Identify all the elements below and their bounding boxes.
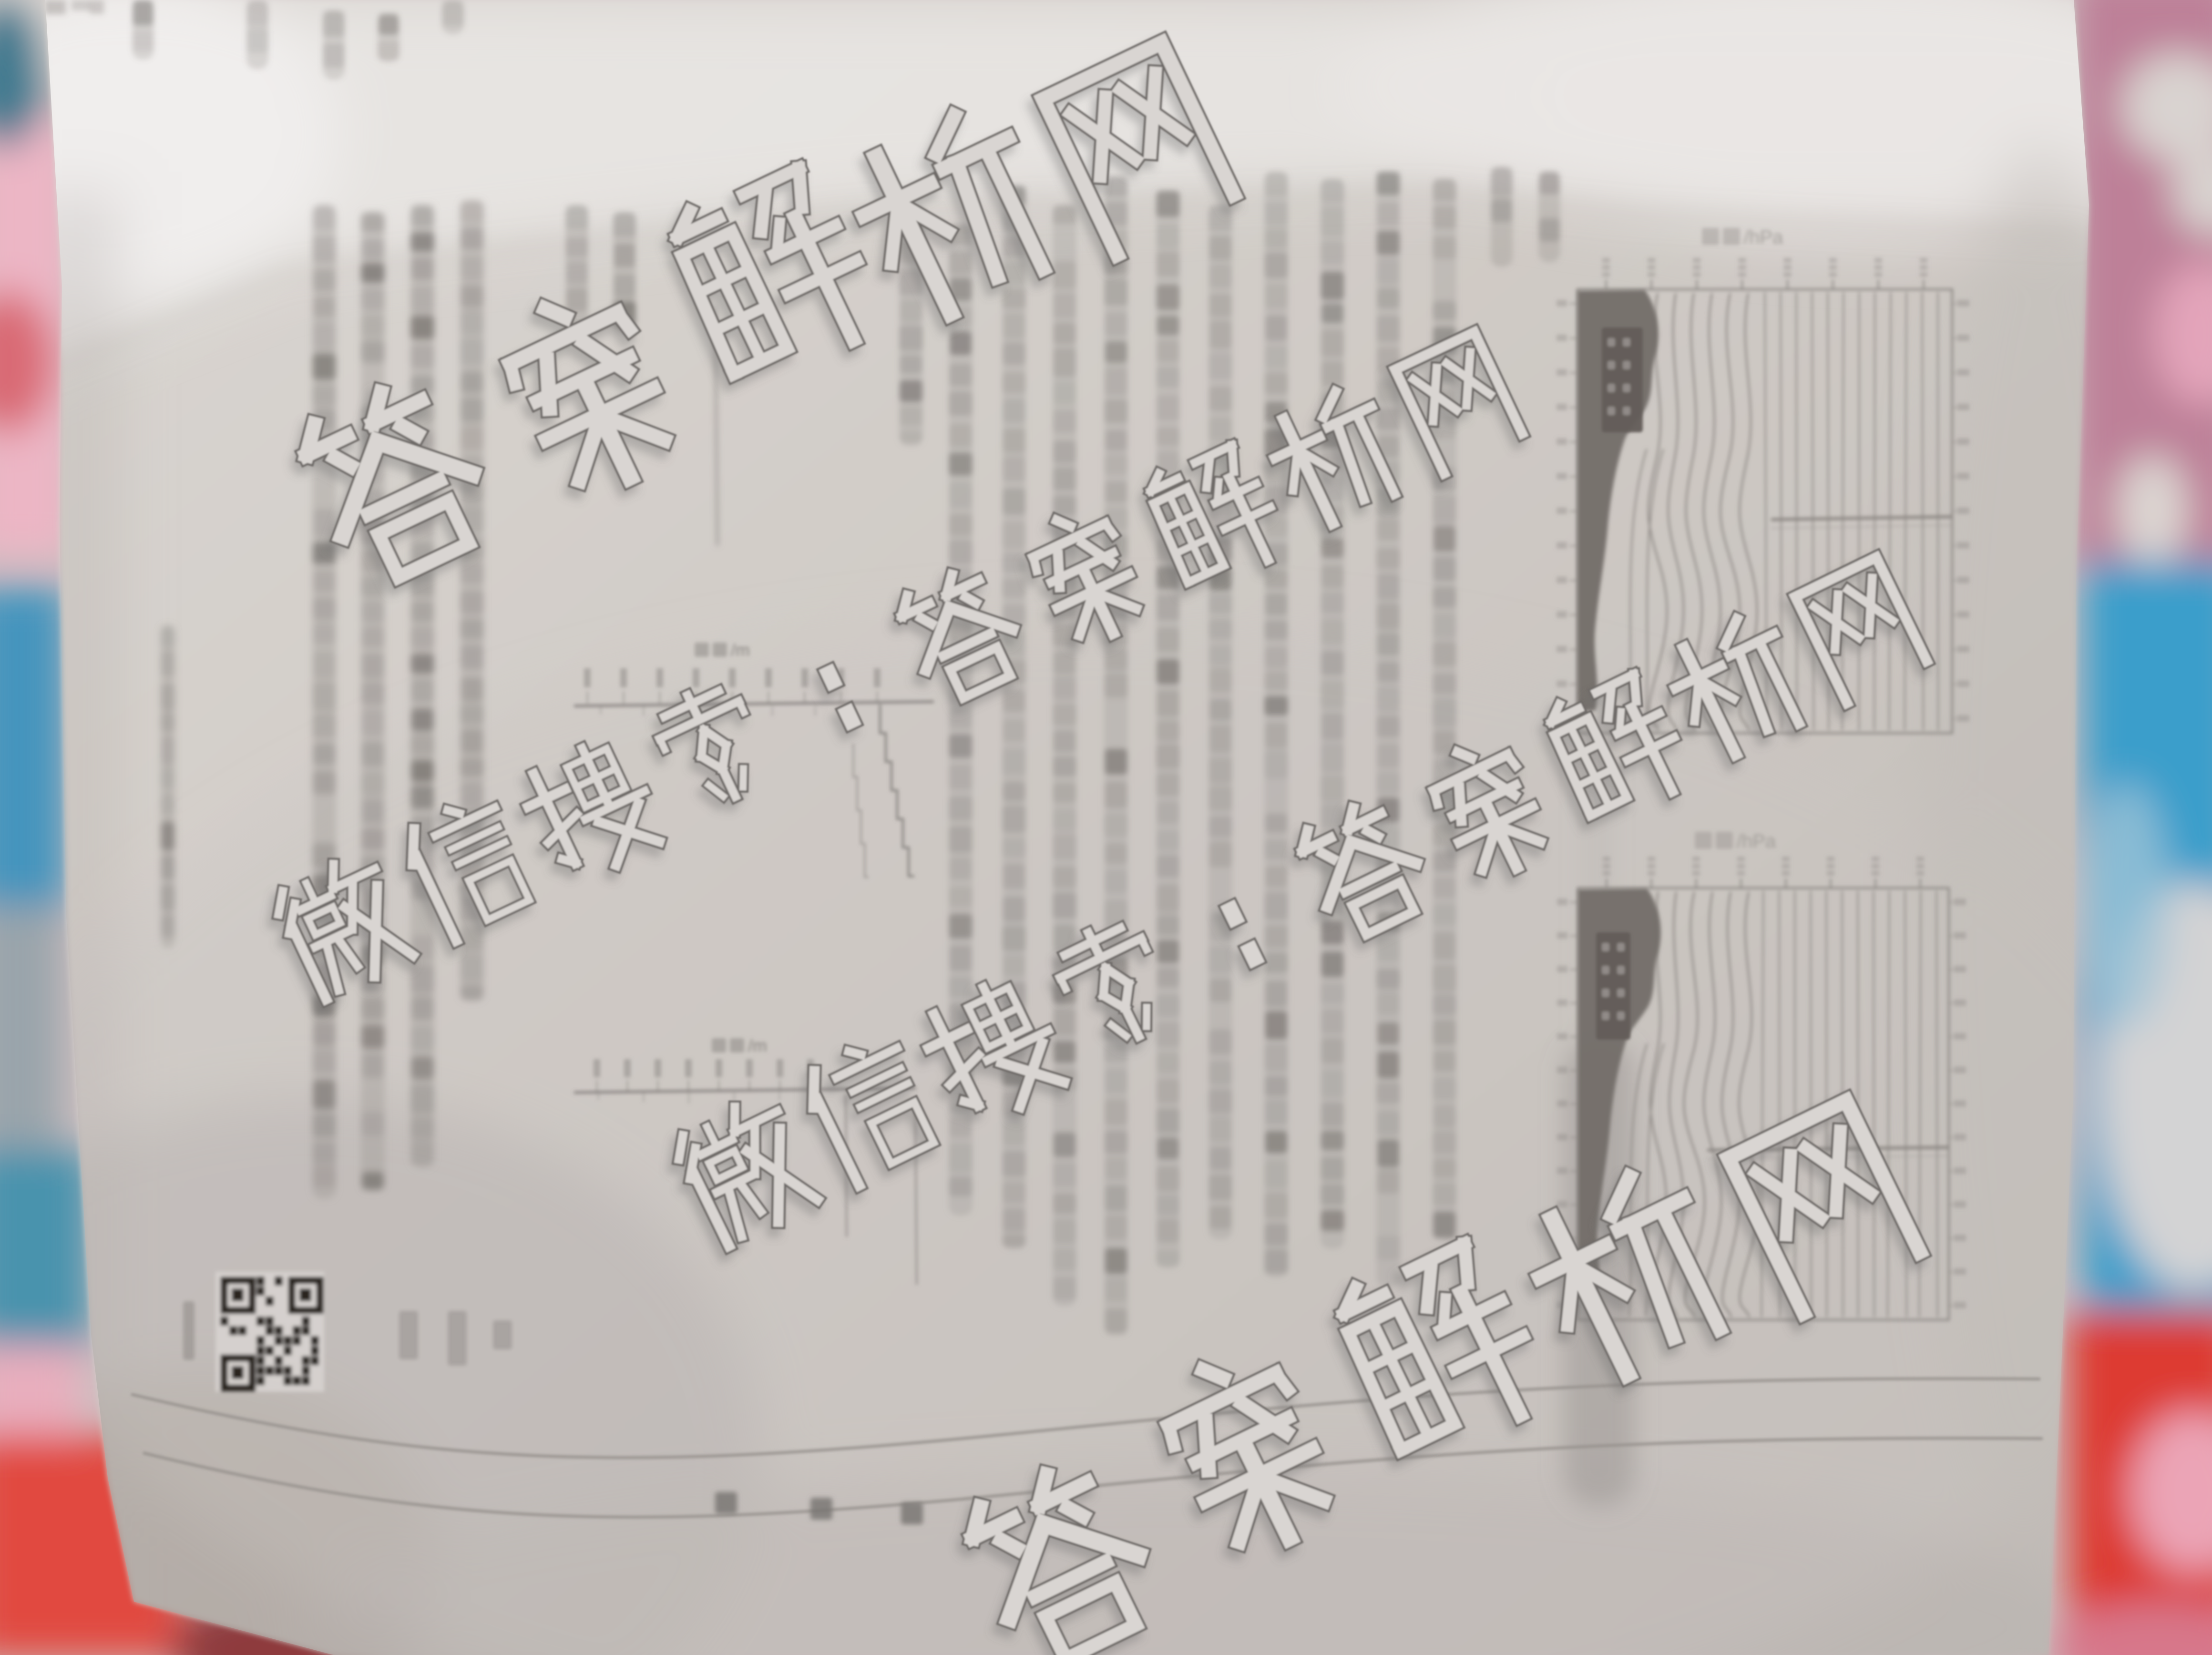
- svg-text:/hPa: /hPa: [1744, 227, 1783, 248]
- svg-text:/m: /m: [748, 1036, 767, 1055]
- svg-text:/hPa: /hPa: [1737, 831, 1776, 852]
- svg-text:/m: /m: [731, 640, 750, 660]
